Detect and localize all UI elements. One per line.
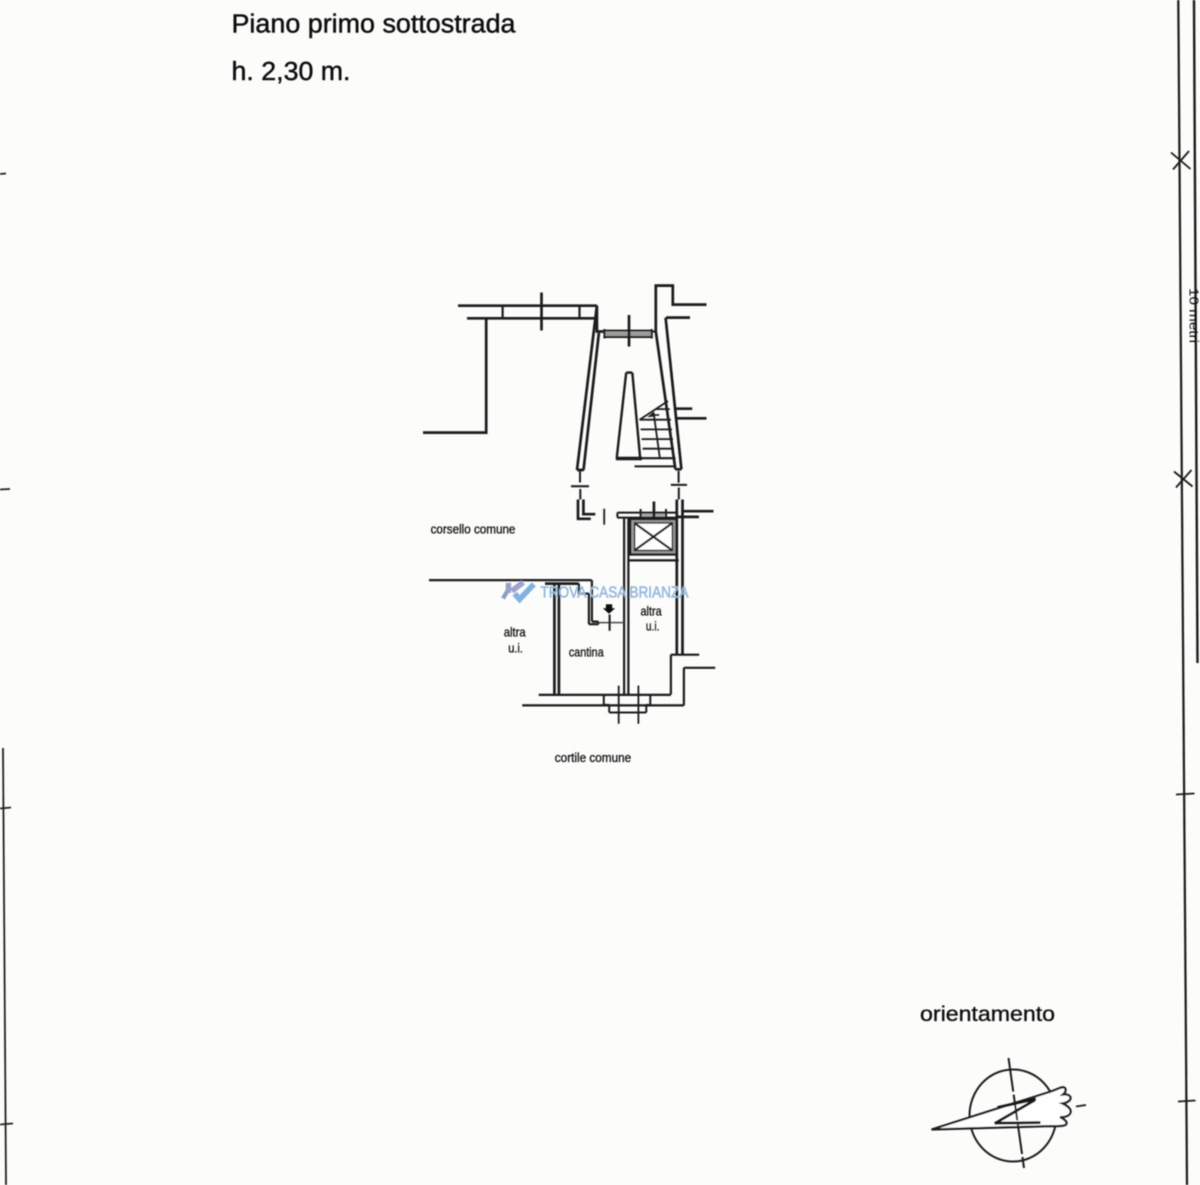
svg-text:h. 2,30 m.: h. 2,30 m.	[232, 58, 351, 86]
svg-text:cortile comune: cortile comune	[555, 750, 631, 765]
svg-text:cantina: cantina	[569, 645, 604, 660]
svg-text:altra: altra	[641, 604, 663, 619]
svg-text:altra: altra	[504, 625, 527, 640]
svg-text:u.i.: u.i.	[646, 619, 660, 634]
svg-text:corsello comune: corsello comune	[431, 521, 516, 536]
svg-text:10 metri: 10 metri	[1187, 288, 1200, 343]
svg-text:u.i.: u.i.	[508, 640, 523, 655]
svg-text:orientamento: orientamento	[920, 1003, 1055, 1026]
svg-text:Piano primo sottostrada: Piano primo sottostrada	[232, 11, 517, 39]
svg-text:TROVA CASA BRIANZA: TROVA CASA BRIANZA	[540, 584, 688, 601]
